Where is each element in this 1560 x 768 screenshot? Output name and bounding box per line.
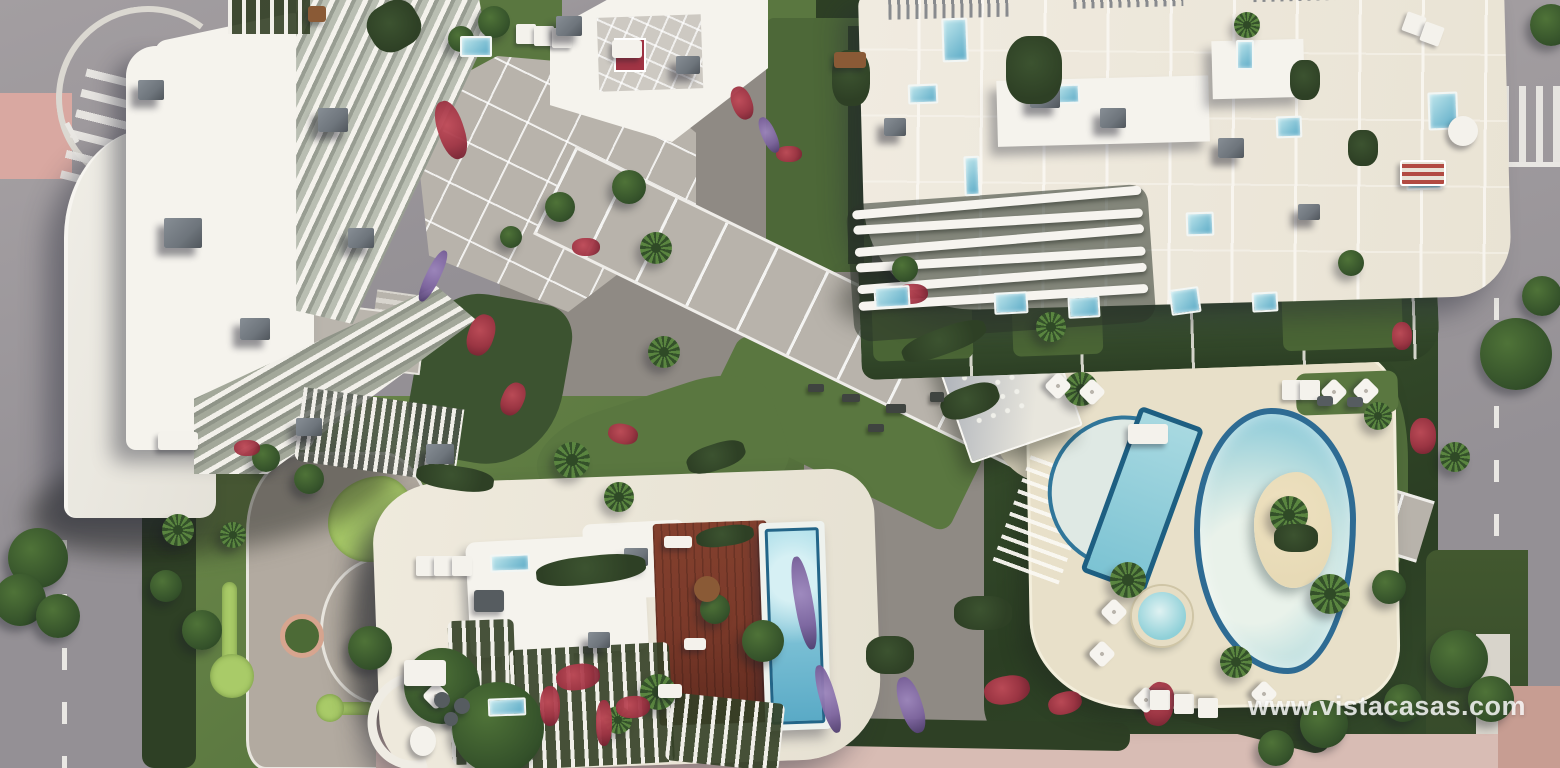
furniture: [454, 698, 470, 714]
mini-pool: [1168, 286, 1201, 316]
furniture: [308, 6, 326, 22]
tree: [36, 594, 80, 638]
umbrella: [1100, 598, 1128, 626]
tree: [1530, 4, 1560, 46]
tree: [294, 464, 324, 494]
tree: [1480, 318, 1552, 390]
flower: [1046, 688, 1085, 719]
flower: [727, 84, 757, 123]
flower: [414, 248, 451, 304]
mini-pool: [993, 291, 1028, 315]
shrub: [1274, 524, 1318, 552]
tree: [150, 570, 182, 602]
furniture: [1448, 116, 1478, 146]
flower: [496, 379, 530, 419]
mini-pool: [488, 697, 527, 716]
lounger: [1282, 380, 1302, 400]
watermark-url: www.vistacasas.com: [1248, 691, 1526, 722]
palm: [1310, 574, 1350, 614]
flower: [755, 115, 783, 155]
flower: [615, 695, 650, 719]
lounger: [1198, 698, 1218, 718]
mini-pool: [490, 553, 531, 572]
flower: [572, 238, 600, 256]
tree: [348, 626, 392, 670]
palm: [1234, 12, 1260, 38]
furniture: [158, 432, 198, 450]
ac-unit: [318, 108, 348, 132]
palm: [604, 482, 634, 512]
furniture: [410, 726, 436, 756]
palm: [1364, 402, 1392, 430]
mini-pool: [1251, 291, 1278, 312]
shrub: [954, 596, 1012, 630]
ac-unit: [164, 218, 202, 248]
lounger: [516, 24, 536, 44]
palm: [554, 442, 590, 478]
palm: [1036, 312, 1066, 342]
ac-unit: [884, 118, 906, 136]
gym-item: [868, 424, 884, 432]
mini-pool: [460, 36, 492, 57]
mini-pool: [1186, 212, 1215, 237]
tree: [1258, 730, 1294, 766]
gym-item: [808, 384, 824, 392]
lounger: [416, 556, 436, 576]
furniture: [474, 590, 504, 612]
tree: [1338, 250, 1364, 276]
ac-unit: [426, 444, 454, 464]
furniture: [694, 576, 720, 602]
aerial-site-render: www.vistacasas.com: [0, 0, 1560, 768]
lounger: [434, 556, 454, 576]
flower: [234, 440, 260, 456]
furniture: [1347, 397, 1363, 407]
lounger: [452, 556, 472, 576]
furniture: [664, 536, 692, 548]
decorations-layer: [0, 0, 1560, 768]
shrub: [898, 314, 990, 369]
mini-pool: [1276, 116, 1303, 139]
ac-unit: [138, 80, 164, 100]
ac-unit: [1218, 138, 1244, 158]
mini-pool: [1236, 40, 1254, 70]
ac-unit: [556, 16, 582, 36]
flower: [776, 146, 802, 162]
shrub: [1006, 36, 1062, 104]
shrub: [359, 0, 428, 60]
tree: [478, 6, 510, 38]
shrub: [1290, 60, 1320, 100]
ac-unit: [1100, 108, 1126, 128]
tree: [892, 256, 918, 282]
flower: [982, 672, 1032, 708]
lounger: [1150, 690, 1170, 710]
furniture: [834, 52, 866, 68]
furniture: [1317, 396, 1333, 406]
ac-unit: [296, 418, 322, 436]
flower: [554, 661, 601, 693]
gym-item: [886, 404, 906, 413]
shrub: [415, 461, 496, 496]
mini-pool: [1067, 295, 1100, 319]
tree: [1372, 570, 1406, 604]
lounger: [1174, 694, 1194, 714]
ac-unit: [240, 318, 270, 340]
furniture: [434, 692, 450, 708]
palm: [220, 522, 246, 548]
mini-pool: [963, 156, 980, 197]
palm: [162, 514, 194, 546]
furniture: [1400, 160, 1446, 186]
tree: [452, 682, 544, 768]
flower: [787, 555, 821, 651]
shrub: [866, 636, 914, 674]
ac-unit: [676, 56, 700, 74]
mini-pool: [908, 83, 939, 104]
lounger: [534, 26, 554, 46]
mini-pool: [873, 285, 910, 309]
mini-pool: [941, 18, 969, 63]
tree: [1522, 276, 1560, 316]
palm: [1110, 562, 1146, 598]
shrub: [937, 377, 1003, 425]
gym-item: [842, 394, 860, 402]
tree: [182, 610, 222, 650]
flower: [429, 97, 472, 162]
flower: [540, 686, 560, 726]
ac-unit: [1298, 204, 1320, 220]
furniture: [684, 638, 706, 650]
palm: [1440, 442, 1470, 472]
shrub: [1348, 130, 1378, 166]
tree: [545, 192, 575, 222]
flower: [1410, 418, 1436, 454]
flower: [606, 421, 640, 447]
palm: [648, 336, 680, 368]
shrub: [683, 435, 748, 478]
gym-item: [930, 392, 944, 402]
tree: [612, 170, 646, 204]
tree: [742, 620, 784, 662]
shrub: [535, 550, 647, 589]
flower: [596, 700, 612, 746]
tree: [500, 226, 522, 248]
ac-unit: [348, 228, 374, 248]
furniture: [658, 684, 682, 698]
flower: [462, 311, 500, 359]
umbrella: [1088, 640, 1116, 668]
furniture: [404, 660, 446, 686]
flower: [892, 674, 931, 736]
ac-unit: [588, 632, 610, 648]
palm: [640, 232, 672, 264]
furniture: [444, 712, 458, 726]
palm: [1220, 646, 1252, 678]
furniture: [612, 40, 642, 58]
flower: [811, 663, 846, 735]
flower: [1392, 322, 1412, 350]
furniture: [1128, 424, 1168, 444]
shrub: [695, 522, 755, 550]
